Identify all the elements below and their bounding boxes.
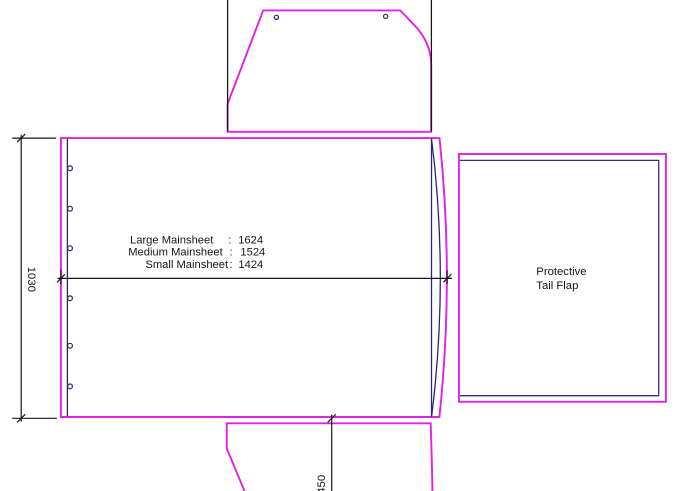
svg-text:1424: 1424 [238, 259, 263, 271]
svg-text:1030: 1030 [25, 267, 37, 292]
svg-text:1624: 1624 [238, 234, 263, 246]
svg-text:Small Mainsheet: Small Mainsheet [145, 259, 229, 271]
svg-text:Tail Flap: Tail Flap [536, 280, 578, 292]
svg-text:Large Mainsheet: Large Mainsheet [130, 234, 214, 246]
svg-text:Medium Mainsheet: Medium Mainsheet [128, 247, 223, 259]
svg-text::: : [230, 259, 233, 271]
svg-text:1524: 1524 [240, 247, 265, 259]
svg-text::: : [230, 247, 233, 259]
svg-text::: : [228, 234, 231, 246]
svg-text:450: 450 [316, 475, 328, 491]
svg-text:Protective: Protective [536, 266, 586, 278]
